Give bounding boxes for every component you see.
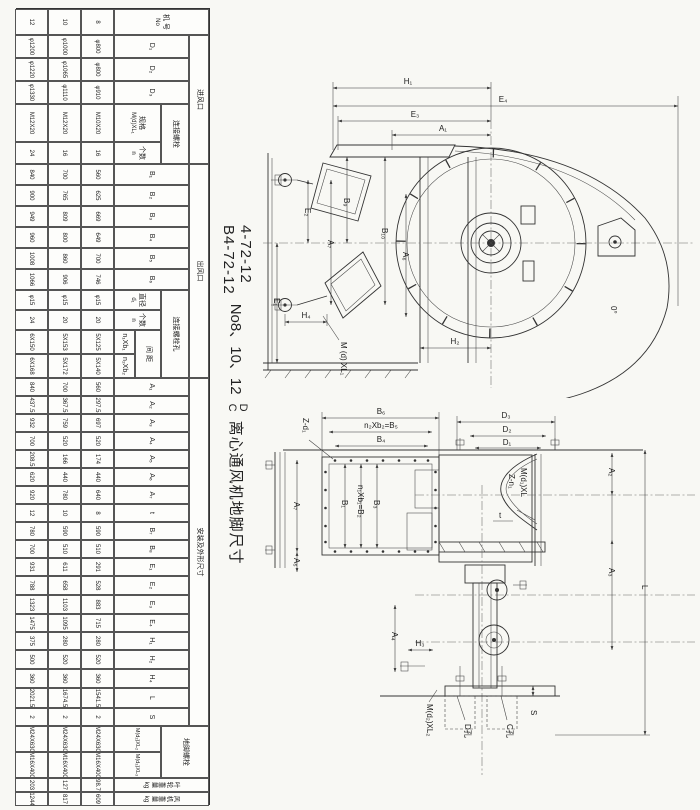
header-b4: B₄ bbox=[114, 227, 189, 248]
table-cell-L: 2021.5 bbox=[15, 688, 48, 708]
dim-b6: B₆ bbox=[377, 407, 386, 416]
group-anchor-bolts: 地脚螺栓 bbox=[161, 726, 209, 778]
fan-side-view: B₆ n₂Xb₂=B₅ B₄ Z-d₁ A₇ A₅ B₁ n₁Xb₁=B₂ B₃… bbox=[265, 390, 695, 808]
table-cell-D3: φ1330 bbox=[15, 81, 48, 104]
header-count-label: 个数 bbox=[138, 146, 146, 160]
anchor-bolt-note: M(d₂)XL₂ bbox=[425, 704, 434, 736]
model-numbers: 4-72-12 B4-72-12 bbox=[220, 225, 254, 295]
housing-body bbox=[439, 455, 532, 562]
table-cell-S: 2 bbox=[15, 708, 48, 726]
table-cell-E3: 1323 bbox=[15, 595, 48, 614]
table-cell-D3: φ910 bbox=[81, 81, 114, 104]
group-inlet: 进风口 bbox=[189, 35, 209, 164]
table-cell-H2: 520 bbox=[81, 650, 114, 669]
table-cell-n_out: 20 bbox=[81, 310, 114, 330]
table-cell-W2: 609 bbox=[81, 792, 114, 806]
size-range: No8、10、12 bbox=[227, 304, 248, 395]
table-cell-B2: 765 bbox=[48, 185, 81, 206]
header-e3: E₃ bbox=[114, 595, 189, 614]
dim-a6: A₆ bbox=[401, 252, 410, 261]
header-a6: A₆ bbox=[114, 468, 189, 486]
dim-a5: A₅ bbox=[292, 558, 301, 567]
table-cell-D2: φ1065 bbox=[48, 58, 81, 81]
header-anchor1: M(d₂)XL₂ bbox=[114, 726, 161, 752]
header-s: S bbox=[114, 708, 189, 726]
dim-h3: H₃ bbox=[415, 639, 424, 648]
table-cell-H4: 360 bbox=[81, 669, 114, 688]
table-cell-B2: 625 bbox=[81, 185, 114, 206]
table-cell-E4: 1095 bbox=[48, 614, 81, 632]
table-cell-B1: 840 bbox=[15, 164, 48, 185]
table-cell-A6: 440 bbox=[48, 468, 81, 486]
header-h1: H₁ bbox=[114, 632, 189, 650]
table-cell-D3: φ1110 bbox=[48, 81, 81, 104]
header-hole-dia: 直径 d₁ bbox=[114, 290, 161, 310]
page-title: 4-72-12 B4-72-12 No8、10、12 D C 离心通风机地脚尺寸 bbox=[203, 225, 271, 587]
table-cell-A2: 297.5 bbox=[81, 396, 114, 414]
table-cell-H2: 500 bbox=[15, 650, 48, 669]
header-d1: D₁ bbox=[114, 35, 189, 58]
header-n1b1: n₁Xb₁ bbox=[114, 330, 135, 354]
table-cell-D2: φ800 bbox=[81, 58, 114, 81]
table-cell-B5: 700 bbox=[81, 248, 114, 269]
table-cell-E2: 658 bbox=[48, 576, 81, 595]
table-cell-E1: 291 bbox=[81, 558, 114, 576]
header-e1: E₁ bbox=[114, 558, 189, 576]
table-cell-E4: 1475 bbox=[15, 614, 48, 632]
table-cell-A1: 560 bbox=[81, 378, 114, 396]
table-cell-W1: 203 bbox=[15, 778, 48, 792]
table-cell-t: 10 bbox=[48, 504, 81, 522]
table-cell-d1: φ15 bbox=[81, 290, 114, 310]
dim-b10: B₁₀ bbox=[380, 228, 389, 239]
table-cell-A2: 367.5 bbox=[48, 396, 81, 414]
table-cell-S: 2 bbox=[81, 708, 114, 726]
header-a3: A₃ bbox=[114, 414, 189, 432]
table-cell-no: 12 bbox=[15, 9, 48, 35]
inlet-bolt-count: Z-n₁ bbox=[507, 474, 516, 489]
table-cell-A5: 174 bbox=[81, 450, 114, 468]
table-cell-A3: 932 bbox=[15, 414, 48, 432]
dimension-table: 机 号 No 进风口 D₁ D₂ D₃ 连接螺栓 规格 M(d)XL₁ 个数 n… bbox=[16, 8, 210, 805]
header-jihao-label: 机 号 bbox=[162, 14, 170, 30]
dim-a7-top: A₇ bbox=[326, 240, 335, 248]
header-n2b2: n₂Xb₂ bbox=[114, 354, 135, 378]
table-cell-H4: 360 bbox=[48, 669, 81, 688]
dim-a1: A₁ bbox=[439, 124, 447, 133]
table-cell-W2: 817 bbox=[48, 792, 81, 806]
hatching bbox=[265, 370, 411, 378]
header-count-inlet: 个数 n bbox=[114, 142, 161, 164]
header-spec: 规格 M(d)XL₁ bbox=[114, 104, 161, 142]
table-cell-spec: M10X20 bbox=[81, 104, 114, 142]
inlet-bolt-note: M (d) XL₁ bbox=[339, 342, 348, 376]
inlet-bolt-spec: M(d₁)XL bbox=[519, 468, 528, 497]
table-cell-B7: 590 bbox=[81, 522, 114, 540]
angle-note: 0° bbox=[609, 306, 618, 314]
table-cell-A4: 520 bbox=[48, 432, 81, 450]
table-cell-H1: 375 bbox=[15, 632, 48, 650]
header-l: L bbox=[114, 688, 189, 708]
dim-d3: D₃ bbox=[501, 411, 510, 420]
table-cell-H1: 280 bbox=[48, 632, 81, 650]
table-cell-DJ2: M16X400 bbox=[15, 752, 48, 778]
table-cell-n_in: 24 bbox=[15, 142, 48, 164]
table-cell-B8: 700 bbox=[15, 540, 48, 558]
table-cell-n2b2: 5X172 bbox=[48, 354, 81, 378]
header-b7: B₇ bbox=[114, 522, 189, 540]
table-cell-n1b1: 5X125 bbox=[81, 330, 114, 354]
table-cell-H2: 520 bbox=[48, 650, 81, 669]
header-h4: H₄ bbox=[114, 669, 189, 688]
table-cell-B7: 780 bbox=[15, 522, 48, 540]
table-cell-E1: 931 bbox=[15, 558, 48, 576]
header-e2: E₂ bbox=[114, 576, 189, 595]
table-cell-no: 10 bbox=[48, 9, 81, 35]
dim-t: t bbox=[499, 511, 502, 520]
header-a7: A₇ bbox=[114, 486, 189, 504]
table-cell-DJ2: M16X400 bbox=[48, 752, 81, 778]
table-cell-W1: 127 bbox=[48, 778, 81, 792]
dim-a3: A₃ bbox=[607, 568, 616, 577]
table-cell-t: 8 bbox=[81, 504, 114, 522]
upper-support-bracket bbox=[271, 163, 371, 221]
header-b3: B₃ bbox=[114, 206, 189, 227]
variant-bottom: C bbox=[226, 404, 237, 412]
dim-b5: n₂Xb₂=B₅ bbox=[364, 421, 398, 430]
table-cell-A7: 780 bbox=[48, 486, 81, 504]
header-hole-dia-label: 直径 bbox=[138, 293, 146, 307]
table-cell-n2b2: 6X168 bbox=[15, 354, 48, 378]
table-cell-L: 1674.5 bbox=[48, 688, 81, 708]
table-cell-no: 8 bbox=[81, 9, 114, 35]
dim-e2: E₂ bbox=[303, 208, 312, 216]
dim-e4: E₄ bbox=[499, 95, 508, 104]
header-spacing: 间 距 bbox=[135, 330, 161, 378]
table-cell-A1: 840 bbox=[15, 378, 48, 396]
dim-e1: E₁ bbox=[272, 298, 281, 306]
table-cell-B3: 949 bbox=[15, 206, 48, 227]
table-cell-B7: 590 bbox=[48, 522, 81, 540]
header-b5: B₅ bbox=[114, 248, 189, 269]
table-cell-B8: 510 bbox=[48, 540, 81, 558]
dim-a2: A₂ bbox=[607, 468, 616, 476]
header-d3: D₃ bbox=[114, 81, 189, 104]
header-b8: B₈ bbox=[114, 540, 189, 558]
dim-e3: E₃ bbox=[411, 110, 420, 119]
fan-housing-view: H₁ E₄ E₃ A₁ E₂ A₇ E₁ B₉ B₁₀ A₆ H₄ H₂ M (… bbox=[263, 58, 695, 398]
table-cell-B4: 800 bbox=[48, 227, 81, 248]
header-fan-weight: 风机重量 kg bbox=[114, 792, 209, 806]
table-cell-L: 1541.5 bbox=[81, 688, 114, 708]
table-cell-n_in: 16 bbox=[48, 142, 81, 164]
table-cell-B3: 809 bbox=[48, 206, 81, 227]
dim-d1: D₁ bbox=[503, 438, 512, 447]
table-cell-E2: 528 bbox=[81, 576, 114, 595]
header-a4: A₄ bbox=[114, 432, 189, 450]
header-a2: A₂ bbox=[114, 396, 189, 414]
table-cell-A4: 520 bbox=[81, 432, 114, 450]
variant-fraction: D C bbox=[226, 404, 248, 412]
header-b6: B₆ bbox=[114, 269, 189, 290]
table-cell-DJ2: M16X400 bbox=[81, 752, 114, 778]
dim-b9: B₉ bbox=[342, 198, 351, 207]
table-cell-W2: 1244 bbox=[15, 792, 48, 806]
dim-h4: H₄ bbox=[301, 311, 310, 320]
table-cell-D1: φ1000 bbox=[48, 35, 81, 58]
table-cell-E4: 715 bbox=[81, 614, 114, 632]
catalog-page: { "title": { "model1": "4-72-12", "model… bbox=[0, 0, 700, 810]
bearing-pedestal bbox=[400, 565, 527, 688]
dim-b1: B₁ bbox=[340, 500, 349, 508]
table-cell-B6: 1066 bbox=[15, 269, 48, 290]
dim-s: S bbox=[529, 710, 538, 715]
header-hole-count-sub: n bbox=[130, 318, 138, 321]
table-cell-DJ1: M24X630 bbox=[81, 726, 114, 752]
outlet-hole-note: Z-d₁ bbox=[301, 418, 310, 433]
dim-b3: B₃ bbox=[372, 500, 381, 509]
table-cell-H1: 280 bbox=[81, 632, 114, 650]
header-a5: A₅ bbox=[114, 450, 189, 468]
table-cell-D2: φ1220 bbox=[15, 58, 48, 81]
table-cell-n1b1: 6X150 bbox=[15, 330, 48, 354]
table-cell-n1b1: 5X153 bbox=[48, 330, 81, 354]
table-cell-D1: φ800 bbox=[81, 35, 114, 58]
table-cell-A4: 700 bbox=[15, 432, 48, 450]
table-cell-S: 2 bbox=[48, 708, 81, 726]
header-no-label: No bbox=[154, 18, 162, 26]
table-cell-B2: 900 bbox=[15, 185, 48, 206]
table-cell-B6: 906 bbox=[48, 269, 81, 290]
table-cell-A5: 166 bbox=[48, 450, 81, 468]
table-cell-n_out: 20 bbox=[48, 310, 81, 330]
header-jihao: 机 号 No bbox=[114, 9, 209, 35]
header-e4: E₄ bbox=[114, 614, 189, 632]
lower-support-bracket bbox=[271, 252, 381, 318]
model-line-1: 4-72-12 bbox=[237, 225, 254, 295]
table-cell-B3: 669 bbox=[81, 206, 114, 227]
dim-b2: n₁Xb₁=B₂ bbox=[356, 485, 365, 518]
table-cell-DJ1: M24X630 bbox=[15, 726, 48, 752]
header-b2: B₂ bbox=[114, 185, 189, 206]
table-cell-B4: 960 bbox=[15, 227, 48, 248]
table-cell-A2: 437.5 bbox=[15, 396, 48, 414]
table-cell-E1: 611 bbox=[48, 558, 81, 576]
header-hole-count-label: 个数 bbox=[138, 313, 146, 327]
table-cell-A6: 620 bbox=[15, 468, 48, 486]
table-cell-B5: 860 bbox=[48, 248, 81, 269]
header-spec-label: 规格 bbox=[138, 116, 146, 130]
dim-h2: H₂ bbox=[451, 337, 460, 346]
model-line-2: B4-72-12 bbox=[220, 225, 237, 295]
table-cell-H4: 360 bbox=[15, 669, 48, 688]
table-cell-B8: 510 bbox=[81, 540, 114, 558]
table-cell-W1: 98.7 bbox=[81, 778, 114, 792]
dim-h1: H₁ bbox=[404, 77, 413, 86]
header-t: t bbox=[114, 504, 189, 522]
table-cell-B1: 700 bbox=[48, 164, 81, 185]
table-cell-B6: 746 bbox=[81, 269, 114, 290]
table-cell-A7: 920 bbox=[15, 486, 48, 504]
variant-top: D bbox=[237, 404, 248, 412]
table-cell-B1: 560 bbox=[81, 164, 114, 185]
table-cell-A1: 700 bbox=[48, 378, 81, 396]
motor-bracket bbox=[598, 218, 635, 256]
header-a1: A₁ bbox=[114, 378, 189, 396]
table-cell-E2: 788 bbox=[15, 576, 48, 595]
dimension-table-rotated: 机 号 No 进风口 D₁ D₂ D₃ 连接螺栓 规格 M(d)XL₁ 个数 n… bbox=[13, 8, 210, 805]
group-inlet-bolts: 连接螺栓 bbox=[161, 104, 189, 164]
table-cell-D1: φ1200 bbox=[15, 35, 48, 58]
table-cell-d1: φ15 bbox=[15, 290, 48, 310]
dim-l: L bbox=[640, 585, 649, 590]
hole-leader-2: C孔 bbox=[505, 724, 514, 738]
header-spec-sub: M(d)XL₁ bbox=[130, 112, 138, 134]
table-cell-B4: 649 bbox=[81, 227, 114, 248]
table-cell-A7: 640 bbox=[81, 486, 114, 504]
table-cell-B5: 1008 bbox=[15, 248, 48, 269]
table-cell-DJ1: M24X630 bbox=[48, 726, 81, 752]
base-plate bbox=[445, 686, 555, 696]
header-b1: B₁ bbox=[114, 164, 189, 185]
dim-d2: D₂ bbox=[503, 425, 512, 434]
table-cell-E3: 883 bbox=[81, 595, 114, 614]
table-cell-d1: φ15 bbox=[48, 290, 81, 310]
table-cell-spec: M12X20 bbox=[15, 104, 48, 142]
group-outlet-boltholes: 连接螺栓孔 bbox=[161, 290, 189, 378]
table-cell-E3: 1103 bbox=[48, 595, 81, 614]
table-cell-A6: 440 bbox=[81, 468, 114, 486]
table-cell-A3: 697 bbox=[81, 414, 114, 432]
header-h2: H₂ bbox=[114, 650, 189, 669]
table-cell-n_out: 24 bbox=[15, 310, 48, 330]
table-cell-t: 12 bbox=[15, 504, 48, 522]
dim-b4: B₄ bbox=[377, 435, 386, 444]
page-title-rotated: 4-72-12 B4-72-12 No8、10、12 D C 离心通风机地脚尺寸 bbox=[203, 225, 271, 587]
dim-a4: A₄ bbox=[390, 632, 399, 641]
header-hole-count: 个数 n bbox=[114, 310, 161, 330]
header-d2: D₂ bbox=[114, 58, 189, 81]
header-count-sub: n bbox=[130, 151, 138, 154]
header-anchor2: M(d₃)XL₃ bbox=[114, 752, 161, 778]
table-cell-A3: 759 bbox=[48, 414, 81, 432]
title-text: 离心通风机地脚尺寸 bbox=[227, 421, 248, 565]
table-cell-n_in: 16 bbox=[81, 142, 114, 164]
table-cell-n2b2: 5X140 bbox=[81, 354, 114, 378]
header-hole-dia-sub: d₁ bbox=[130, 297, 138, 302]
table-cell-A5: 208.5 bbox=[15, 450, 48, 468]
hole-leader-1: D孔 bbox=[463, 724, 472, 738]
table-cell-spec: M12X20 bbox=[48, 104, 81, 142]
header-impeller-weight: 叶轮重量 kg bbox=[114, 778, 209, 792]
dim-a7-side: A₇ bbox=[292, 502, 301, 510]
